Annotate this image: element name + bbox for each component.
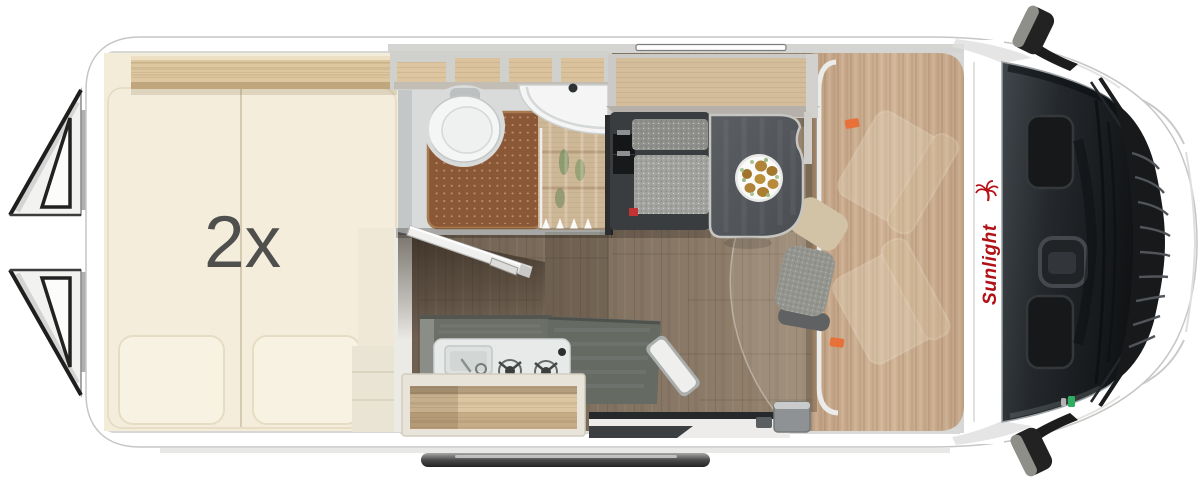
- svg-text:2x: 2x: [204, 202, 281, 283]
- svg-text:Sunlight: Sunlight: [980, 224, 1001, 305]
